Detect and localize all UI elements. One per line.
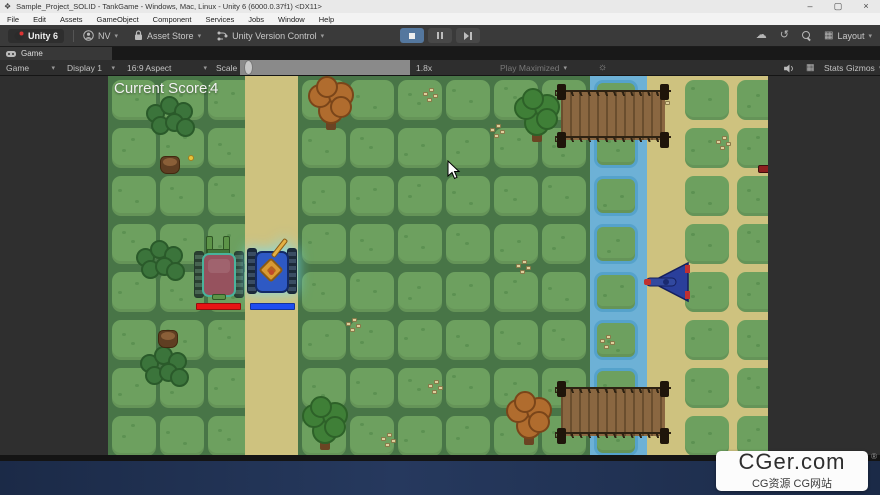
tile-dot — [373, 392, 377, 395]
grass-tile — [542, 320, 586, 360]
grass-tile — [737, 368, 768, 408]
tile-dot — [452, 375, 456, 378]
tile-dot — [122, 149, 126, 152]
grass-tile — [685, 224, 729, 264]
menu-item-services[interactable]: Services — [198, 15, 241, 24]
speckle — [494, 134, 499, 138]
tile-dot — [691, 337, 695, 340]
grass-tile — [398, 128, 442, 168]
tile-dot — [708, 98, 712, 101]
river-tile — [594, 224, 638, 264]
metrics-icon[interactable]: ▦ — [806, 60, 815, 75]
tile-dot — [708, 244, 712, 247]
tile-dot — [360, 341, 364, 344]
tile-dot — [421, 430, 425, 433]
speckle-cluster — [516, 260, 532, 276]
grass-tile — [494, 320, 538, 360]
tile-dot — [356, 279, 360, 282]
tile-dot — [122, 333, 126, 336]
toolbar-right-tools: ☁ ↺ ▦ Layout ▾ — [756, 30, 872, 41]
tile-dot — [616, 349, 620, 352]
bridge-post — [557, 84, 566, 100]
close-button[interactable]: × — [852, 1, 880, 12]
layout-dropdown[interactable]: ▦ Layout ▾ — [824, 31, 872, 41]
tile-dot — [708, 286, 712, 289]
grass-tile — [494, 224, 538, 264]
tile-dot — [756, 428, 760, 431]
tile-dot — [756, 240, 760, 243]
score-value: 4 — [210, 80, 218, 97]
tile-dot — [170, 289, 174, 292]
speckle — [606, 335, 611, 339]
grass-tile — [737, 80, 768, 120]
tile-dot — [456, 437, 460, 440]
chevron-down-icon: ▾ — [51, 64, 55, 72]
pause-button[interactable] — [428, 28, 452, 43]
tile-dot — [548, 287, 552, 290]
tile-dot — [118, 393, 122, 396]
tile-dot — [122, 231, 126, 234]
search-icon[interactable] — [802, 31, 811, 40]
tile-dot — [308, 343, 312, 346]
menu-item-help[interactable]: Help — [312, 15, 341, 24]
turret-dot — [269, 270, 274, 275]
display-label: Display 1 — [67, 63, 102, 73]
grass-tile — [685, 320, 729, 360]
game-map: Current Score: 4 — [108, 76, 768, 455]
grass-tile — [685, 368, 729, 408]
grass-tile — [350, 368, 394, 408]
tile-dot — [214, 101, 218, 104]
speckle — [722, 136, 727, 140]
tile-dot — [421, 144, 425, 147]
flower — [188, 155, 194, 161]
tile-dot — [756, 94, 760, 97]
tile-dot — [308, 139, 312, 142]
tile-dot — [469, 202, 473, 205]
window-title: Sample_Project_SOLID - TankGame - Window… — [16, 2, 322, 11]
river-tile — [594, 176, 638, 216]
gizmos-label: Gizmos — [846, 63, 875, 73]
tile-dot — [183, 340, 187, 343]
stats-toggle[interactable]: Stats — [824, 60, 843, 75]
chevron-down-icon: ▾ — [203, 64, 207, 72]
tab-game-label: Game — [21, 49, 43, 58]
menu-item-file[interactable]: File — [0, 15, 26, 24]
hull-detail — [208, 259, 230, 273]
grass-tile — [302, 224, 346, 264]
layout-label: Layout — [837, 31, 864, 41]
speckle — [381, 437, 386, 441]
tile-dot — [603, 294, 607, 297]
grass-tile — [112, 176, 156, 216]
history-icon[interactable]: ↺ — [780, 30, 789, 41]
tile-dot — [214, 387, 218, 390]
tile-dot — [183, 442, 187, 445]
tile-dot — [756, 198, 760, 201]
tile-dot — [548, 185, 552, 188]
grass-tile — [542, 272, 586, 312]
tile-dot — [500, 331, 504, 334]
tile-dot — [465, 426, 469, 429]
tile-dot — [504, 291, 508, 294]
tile-dot — [513, 198, 517, 201]
gamepad-icon — [6, 50, 16, 58]
speckle — [346, 322, 351, 326]
tile-dot — [170, 391, 174, 394]
tile-dot — [417, 184, 421, 187]
tab-game[interactable]: Game — [0, 47, 112, 60]
tile-dot — [170, 187, 174, 190]
tree-orange — [308, 76, 354, 132]
tile-dot — [452, 191, 456, 194]
enemy-tank — [194, 236, 244, 300]
speckle — [432, 390, 437, 394]
grass-tile — [398, 320, 442, 360]
scale-label: Scale — [216, 60, 237, 75]
tile-dot — [691, 233, 695, 236]
tile-dot — [691, 441, 695, 444]
grass-tile — [350, 272, 394, 312]
minimize-button[interactable]: – — [796, 1, 824, 12]
tile-dot — [417, 102, 421, 105]
tile-dot — [513, 280, 517, 283]
tile-dot — [369, 432, 373, 435]
tile-dot — [131, 424, 135, 427]
tile-dot — [421, 328, 425, 331]
tile-dot — [404, 439, 408, 442]
speckle — [600, 339, 605, 343]
tile-dot — [369, 330, 373, 333]
tile-dot — [312, 283, 316, 286]
mouse-cursor — [447, 160, 461, 180]
account-icon — [83, 30, 94, 41]
tank-bumper — [212, 294, 226, 300]
tile-dot — [747, 189, 751, 192]
tile-dot — [360, 137, 364, 140]
chevron-down-icon: ▾ — [115, 32, 119, 40]
asset-store-dropdown[interactable]: Asset Store ▾ — [134, 30, 201, 41]
tile-dot — [465, 242, 469, 245]
tile-dot — [620, 195, 624, 198]
tile-dot — [691, 149, 695, 152]
bush — [166, 262, 185, 281]
tile-dot — [747, 439, 751, 442]
bridge-rail — [555, 432, 671, 438]
grass-tile — [446, 176, 490, 216]
scale-slider-track[interactable] — [240, 60, 410, 75]
tile-dot — [708, 432, 712, 435]
speckle — [356, 324, 361, 328]
bridge — [561, 92, 665, 140]
tile-dot — [231, 194, 235, 197]
menu-item-gameobject[interactable]: GameObject — [90, 15, 146, 24]
layout-grid-icon: ▦ — [824, 31, 833, 41]
tree-canopy — [514, 391, 536, 413]
version-control-icon — [217, 31, 228, 41]
pause-icon — [437, 32, 443, 39]
bush — [170, 368, 189, 387]
tree-canopy — [522, 88, 544, 110]
watermark-subtitle: CG资源 CG网站 — [752, 475, 832, 491]
tree-canopy — [330, 96, 352, 118]
divider — [73, 30, 74, 42]
bridge-rail — [555, 387, 671, 393]
play-button[interactable] — [400, 28, 424, 43]
tree-canopy — [310, 396, 332, 418]
tile-dot — [452, 89, 456, 92]
tile-dot — [404, 235, 408, 238]
speckle — [665, 101, 670, 105]
tile-dot — [321, 190, 325, 193]
main-toolbar: Unity 6 NV ▾ Asset Store ▾ Unity Versio — [0, 25, 880, 47]
tile-dot — [565, 196, 569, 199]
tile-dot — [500, 249, 504, 252]
speckle-cluster — [381, 433, 397, 449]
speckle-cluster — [600, 335, 616, 351]
view-mode-label: Game — [6, 63, 29, 73]
tile-dot — [456, 151, 460, 154]
tile-dot — [465, 140, 469, 143]
tile-dot — [561, 154, 565, 157]
tile-dot — [218, 143, 222, 146]
speckle — [604, 345, 609, 349]
unity-version-label: Unity 6 — [28, 31, 58, 41]
tile-dot — [118, 189, 122, 192]
enemy-jet — [641, 260, 695, 304]
game-view[interactable]: Current Score: 4 — [0, 76, 880, 455]
tile-dot — [166, 431, 170, 434]
tile-dot — [469, 284, 473, 287]
tile-dot — [325, 232, 329, 235]
bridge-post — [557, 132, 566, 148]
chevron-down-icon: ▾ — [321, 32, 325, 40]
speckle — [716, 140, 721, 144]
tile-dot — [214, 183, 218, 186]
version-control-dropdown[interactable]: Unity Version Control ▾ — [217, 31, 324, 41]
tile-dot — [465, 344, 469, 347]
tile-dot — [561, 236, 565, 239]
tile-dot — [469, 100, 473, 103]
score-label: Current Score: — [114, 80, 212, 97]
tile-dot — [218, 327, 222, 330]
tile-dot — [756, 344, 760, 347]
maximize-button[interactable]: ▢ — [824, 1, 852, 12]
enemy-health-bar — [196, 303, 241, 310]
tile-dot — [756, 282, 760, 285]
tile-dot — [747, 231, 751, 234]
tile-dot — [179, 298, 183, 301]
aspect-ratio-label: 16:9 Aspect — [127, 63, 171, 73]
window-controls: – ▢ × — [796, 1, 880, 12]
play-maximized-dropdown[interactable]: Play Maximized ▾ — [500, 60, 567, 75]
tree-canopy — [528, 411, 550, 433]
menu-item-jobs[interactable]: Jobs — [241, 15, 271, 24]
grass-tile — [350, 224, 394, 264]
tile-dot — [616, 149, 620, 152]
grass-tile — [160, 416, 204, 455]
tile-dot — [408, 195, 412, 198]
grass-tile — [302, 128, 346, 168]
display-dropdown[interactable]: Display 1 ▾ — [64, 60, 118, 75]
menu-item-component[interactable]: Component — [146, 15, 199, 24]
tile-dot — [118, 291, 122, 294]
grass-tile — [494, 272, 538, 312]
tile-dot — [456, 233, 460, 236]
grass-tile — [494, 176, 538, 216]
jet-sprite — [641, 260, 695, 304]
tile-dot — [404, 153, 408, 156]
tile-dot — [552, 329, 556, 332]
tile-dot — [747, 293, 751, 296]
tile-dot — [231, 92, 235, 95]
grass-tile — [685, 176, 729, 216]
scale-slider-knob[interactable] — [244, 60, 253, 75]
tile-dot — [135, 384, 139, 387]
grass-tile — [112, 416, 156, 455]
grass-tile — [446, 272, 490, 312]
bridge-post — [660, 428, 669, 444]
menu-item-window[interactable]: Window — [271, 15, 312, 24]
speckle — [391, 439, 396, 443]
menu-item-edit[interactable]: Edit — [26, 15, 53, 24]
menu-bar: FileEditAssetsGameObjectComponentService… — [0, 13, 880, 25]
tile-dot — [373, 106, 377, 109]
bridge-post — [660, 381, 669, 397]
step-button[interactable] — [456, 28, 480, 43]
tile-dot — [417, 286, 421, 289]
tile-dot — [360, 423, 364, 426]
version-control-label: Unity Version Control — [232, 31, 317, 41]
tile-dot — [356, 197, 360, 200]
tree-green — [514, 88, 560, 144]
grass-tile — [398, 272, 442, 312]
grass-tile — [737, 224, 768, 264]
tile-dot — [135, 200, 139, 203]
gizmos-dropdown[interactable]: Gizmos ▾ — [846, 60, 880, 75]
grass-tile — [685, 80, 729, 120]
speckle — [434, 380, 439, 384]
bridge — [561, 389, 665, 436]
tile-dot — [312, 385, 316, 388]
mute-audio-icon[interactable] — [784, 64, 795, 73]
grass-tile — [446, 320, 490, 360]
tile-dot — [131, 342, 135, 345]
chevron-down-icon: ▾ — [111, 64, 115, 72]
grass-tile — [446, 224, 490, 264]
view-mode-dropdown[interactable]: Game ▾ — [3, 60, 58, 75]
cloud-icon[interactable]: ☁ — [756, 30, 767, 41]
health-pickup — [758, 165, 768, 173]
speckle-cluster — [428, 380, 444, 396]
tree-stump — [160, 156, 180, 174]
aspect-ratio-dropdown[interactable]: 16:9 Aspect ▾ — [124, 60, 210, 75]
game-view-toolbar: Game ▾ Display 1 ▾ 16:9 Aspect ▾ Scale 1… — [0, 60, 880, 76]
tile-dot — [421, 246, 425, 249]
grass-tile — [398, 224, 442, 264]
tile-dot — [325, 334, 329, 337]
tile-dot — [500, 147, 504, 150]
tile-dot — [227, 152, 231, 155]
tree-canopy — [316, 76, 338, 98]
bridge-post — [660, 132, 669, 148]
tile-dot — [756, 136, 760, 139]
tile-dot — [408, 379, 412, 382]
grass-tile — [446, 368, 490, 408]
speckle — [490, 128, 495, 132]
grass-tile — [446, 416, 490, 455]
tile-dot — [369, 248, 373, 251]
grass-tile — [160, 176, 204, 216]
chevron-down-icon: ▾ — [198, 32, 202, 40]
tile-dot — [616, 239, 620, 242]
speckle — [433, 94, 438, 98]
tile-dot — [227, 336, 231, 339]
lock-icon — [134, 30, 143, 41]
tile-dot — [603, 204, 607, 207]
tile-dot — [356, 95, 360, 98]
speckle — [720, 146, 725, 150]
menu-item-assets[interactable]: Assets — [53, 15, 90, 24]
tile-dot — [616, 439, 620, 442]
bridge-post — [660, 84, 669, 100]
tile-dot — [312, 201, 316, 204]
play-maximized-label: Play Maximized — [500, 63, 560, 73]
account-label: NV — [98, 31, 111, 41]
tile-dot — [373, 290, 377, 293]
tile-dot — [122, 435, 126, 438]
bush-cluster — [140, 346, 190, 390]
chevron-down-icon: ▾ — [564, 64, 568, 72]
sun-icon[interactable]: ☼ — [598, 60, 607, 75]
bush-cluster — [136, 240, 186, 284]
bridge-rail — [555, 136, 671, 142]
registered-mark: ® — [871, 452, 877, 461]
grass-tile — [350, 176, 394, 216]
speckle — [526, 266, 531, 270]
tile-dot — [452, 293, 456, 296]
tree-orange — [506, 391, 552, 447]
tile-dot — [373, 188, 377, 191]
tile-dot — [227, 438, 231, 441]
grass-tile — [737, 128, 768, 168]
tile-dot — [513, 382, 517, 385]
tree-green — [302, 396, 348, 452]
unity-version-badge[interactable]: Unity 6 — [8, 29, 64, 43]
tree-stump — [158, 330, 178, 348]
chevron-down-icon: ▾ — [868, 32, 872, 40]
unity-app-icon: ❖ — [4, 3, 11, 11]
tile-dot — [708, 202, 712, 205]
tile-dot — [517, 240, 521, 243]
tree-canopy — [536, 108, 558, 130]
river-tile — [594, 272, 638, 312]
tile-dot — [756, 386, 760, 389]
grass-tile — [737, 320, 768, 360]
speckle-cluster — [423, 88, 439, 104]
tile-dot — [131, 240, 135, 243]
tank-hull — [202, 253, 236, 297]
tile-dot — [308, 241, 312, 244]
tile-dot — [408, 297, 412, 300]
grass-tile — [542, 176, 586, 216]
speckle — [520, 270, 525, 274]
bush — [176, 118, 195, 137]
tile-dot — [360, 239, 364, 242]
account-dropdown[interactable]: NV ▾ — [83, 30, 118, 41]
stop-icon — [409, 33, 415, 39]
tile-dot — [747, 335, 751, 338]
